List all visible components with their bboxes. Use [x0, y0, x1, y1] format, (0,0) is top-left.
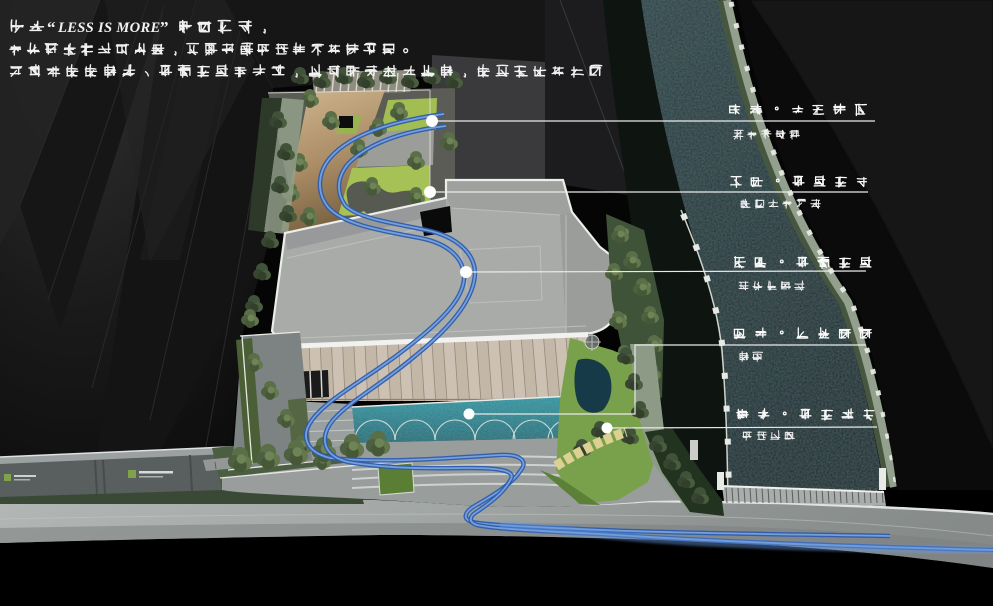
svg-text:”: ” — [160, 18, 169, 37]
svg-text:LESS IS MORE: LESS IS MORE — [57, 20, 161, 36]
svg-text:“: “ — [47, 18, 56, 37]
